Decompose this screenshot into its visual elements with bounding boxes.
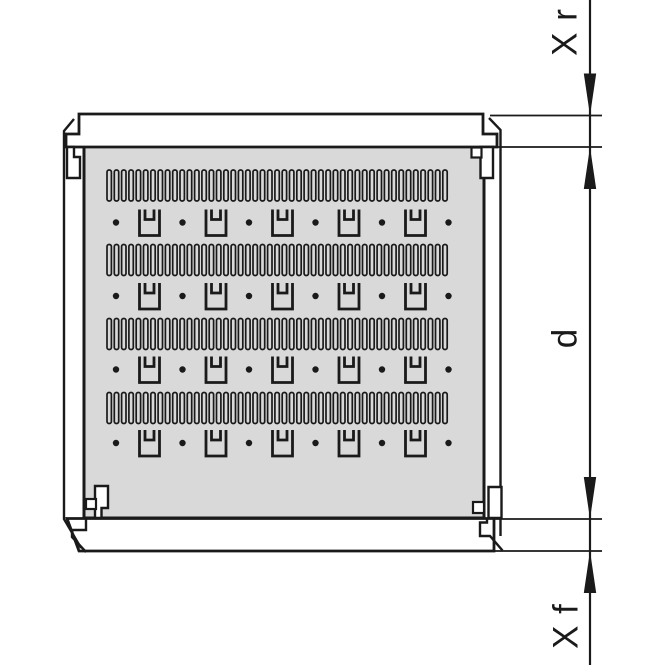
rivet-dot xyxy=(379,293,385,299)
corner-notch xyxy=(472,148,482,158)
rivet-dot xyxy=(246,293,252,299)
rivet-dot xyxy=(113,366,119,372)
rivet-dot xyxy=(379,219,385,225)
top-rail xyxy=(66,114,497,147)
rivet-dot xyxy=(445,293,451,299)
dimension-label-rear: X r xyxy=(548,8,583,56)
drawing-canvas: X r d X f xyxy=(0,0,665,665)
rivet-dot xyxy=(445,219,451,225)
rivet-dot xyxy=(445,440,451,446)
rivet-dot xyxy=(379,366,385,372)
corner-tab xyxy=(489,487,502,518)
dimension-arrow-up xyxy=(584,147,596,189)
rivet-dot xyxy=(312,366,318,372)
rivet-dot xyxy=(246,440,252,446)
dimension-arrow-down xyxy=(584,74,596,116)
dimension-arrow-down xyxy=(584,477,596,519)
rivet-dot xyxy=(445,366,451,372)
rivet-dot xyxy=(179,440,185,446)
rivet-dot xyxy=(246,219,252,225)
rivet-dot xyxy=(246,366,252,372)
side-wall-profile xyxy=(64,119,81,548)
rivet-dot xyxy=(113,219,119,225)
rivet-dot xyxy=(312,219,318,225)
rivet-dot xyxy=(179,219,185,225)
dimension-arrow-up xyxy=(584,551,596,593)
rivet-dot xyxy=(113,440,119,446)
rivet-dot xyxy=(312,440,318,446)
dimension-label-front: X f xyxy=(549,603,584,649)
rivet-dot xyxy=(113,293,119,299)
bottom-rail xyxy=(67,519,494,552)
rivet-dot xyxy=(312,293,318,299)
rivet-dot xyxy=(179,293,185,299)
dimension-label-depth: d xyxy=(548,328,583,348)
rivet-dot xyxy=(379,440,385,446)
corner-notch xyxy=(86,499,96,509)
side-wall-profile xyxy=(489,118,501,536)
rivet-dot xyxy=(179,366,185,372)
corner-tab xyxy=(67,147,80,178)
corner-notch xyxy=(473,502,484,513)
